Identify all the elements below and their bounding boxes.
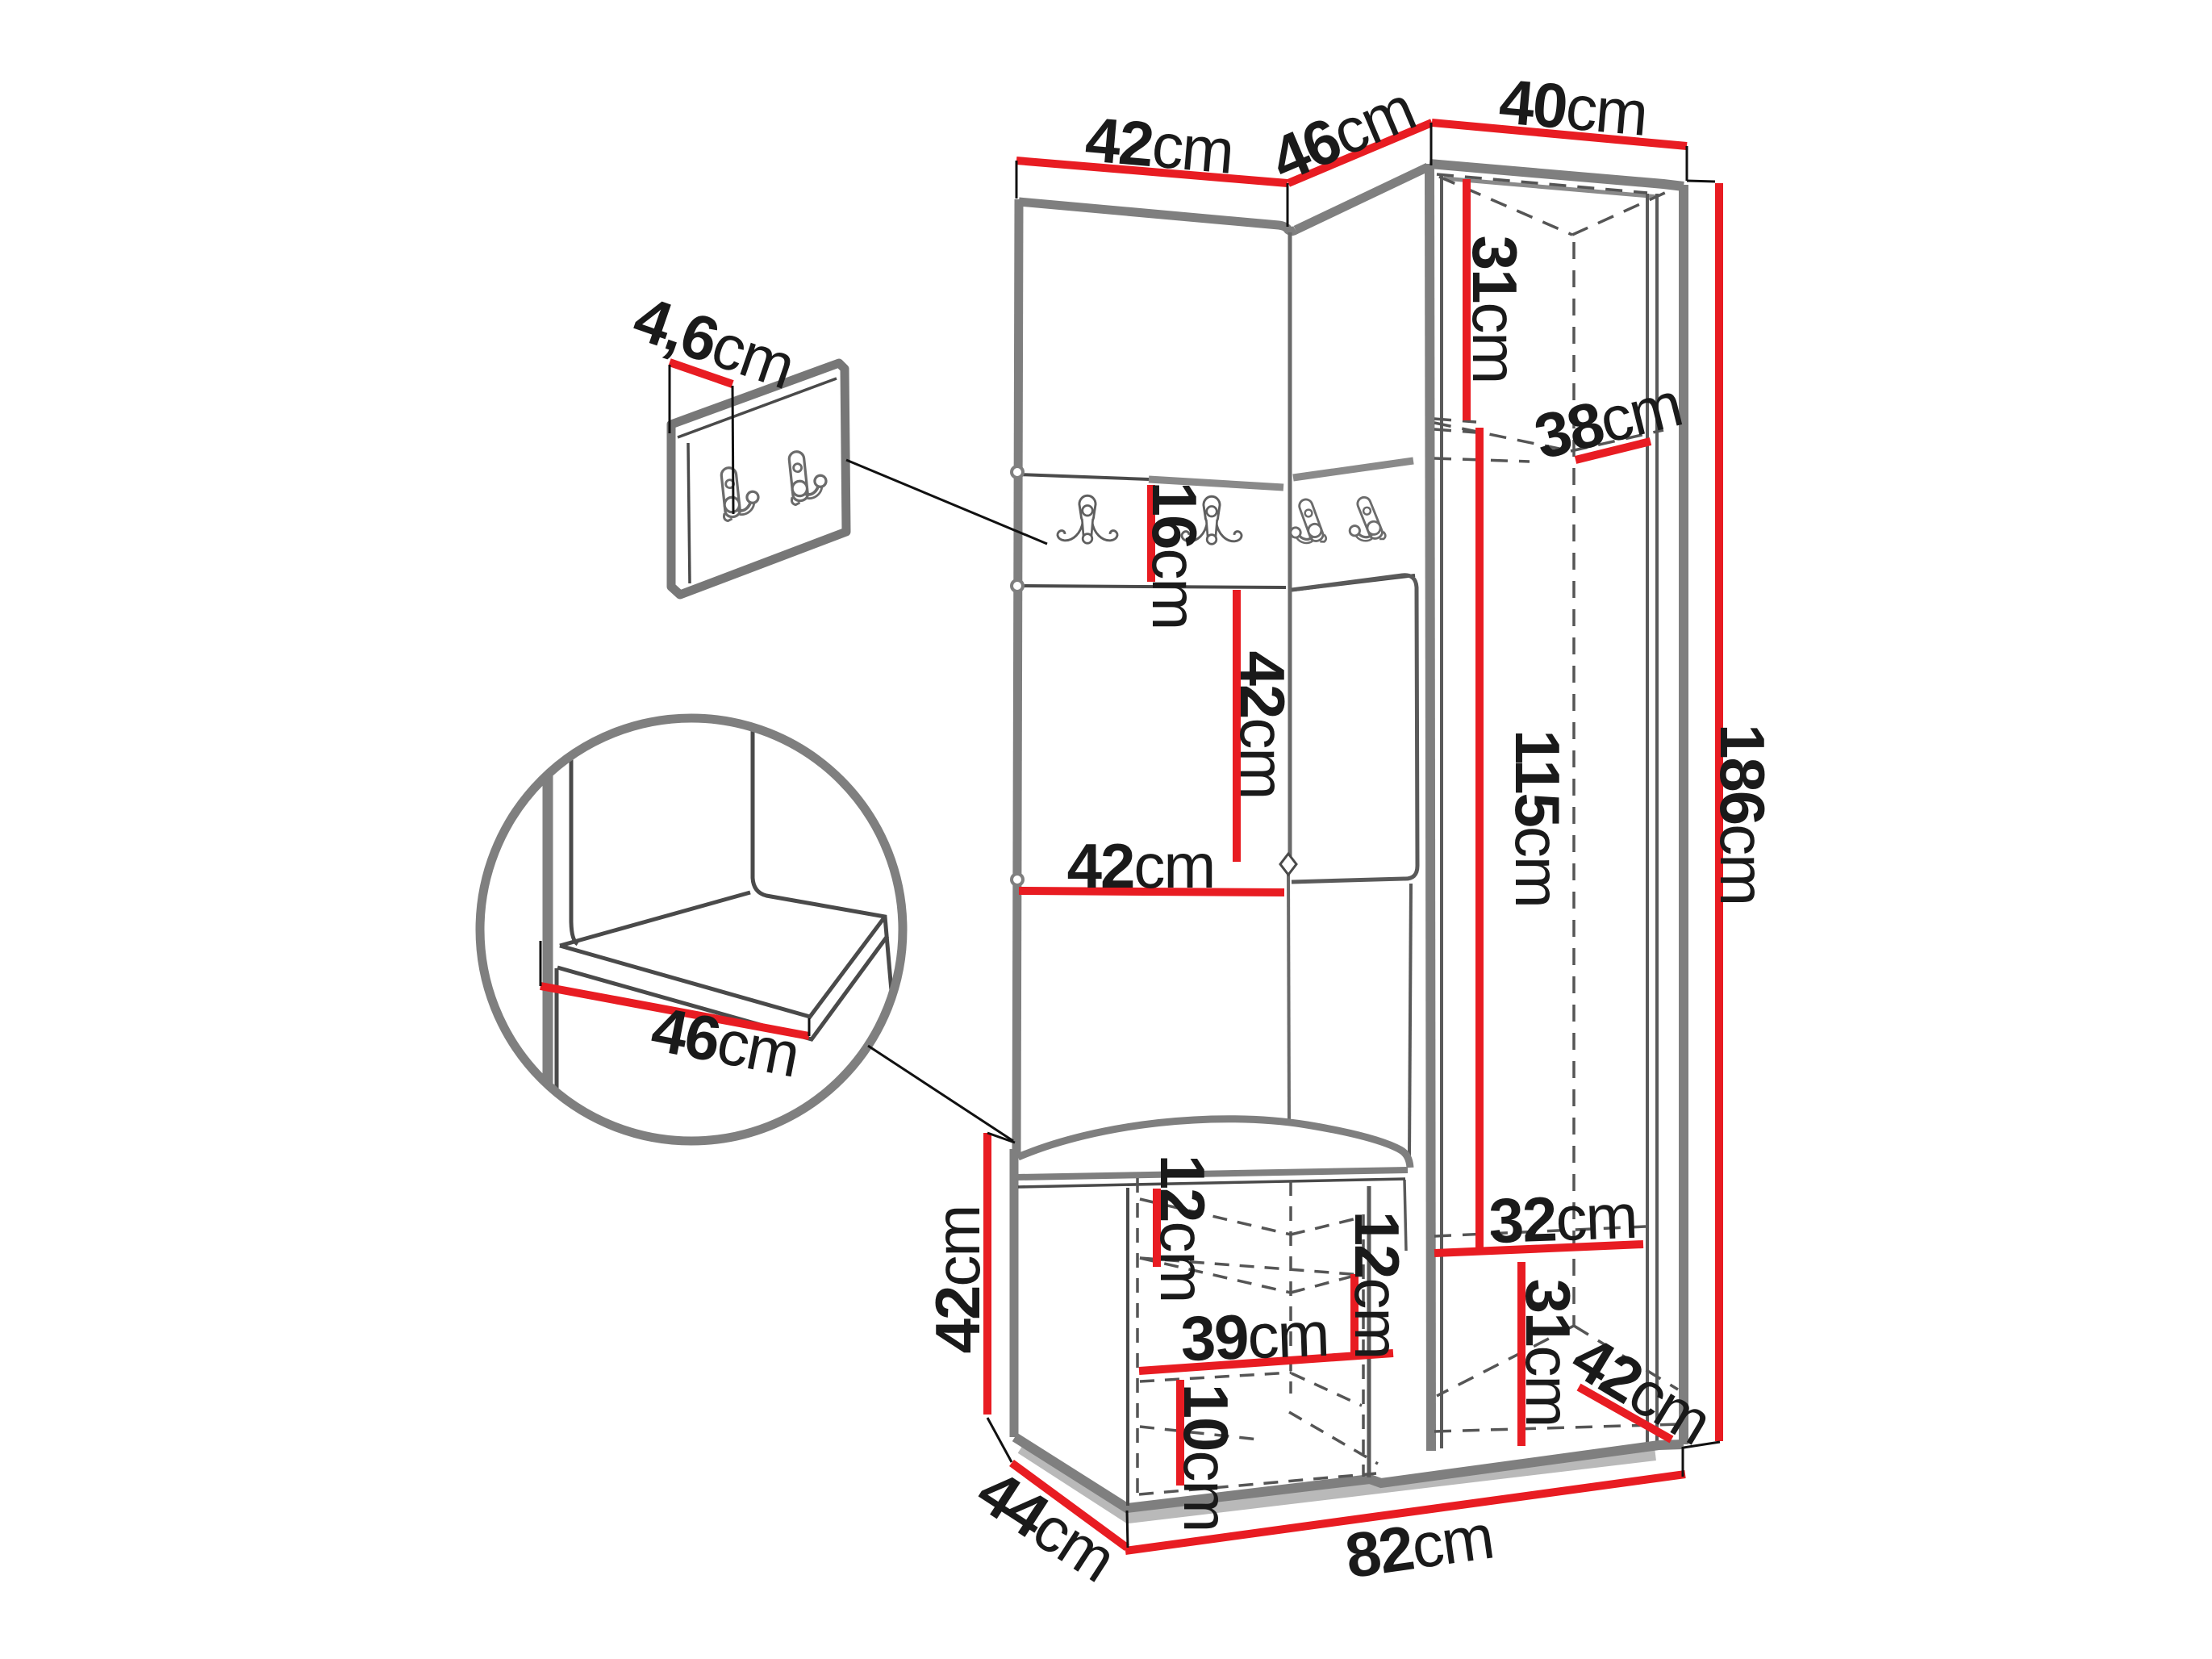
svg-text:12cm: 12cm — [1147, 1155, 1218, 1302]
svg-text:40cm: 40cm — [1496, 65, 1650, 149]
svg-text:31cm: 31cm — [1513, 1279, 1584, 1427]
svg-text:42cm: 42cm — [1067, 830, 1215, 901]
svg-text:32cm: 32cm — [1488, 1181, 1638, 1256]
svg-text:10cm: 10cm — [1171, 1384, 1242, 1532]
svg-text:39cm: 39cm — [1179, 1298, 1329, 1374]
svg-text:42cm: 42cm — [1227, 651, 1298, 799]
svg-text:115cm: 115cm — [1502, 729, 1573, 907]
svg-text:31cm: 31cm — [1459, 236, 1530, 383]
svg-text:186cm: 186cm — [1707, 724, 1778, 905]
svg-text:42cm: 42cm — [1083, 103, 1236, 187]
svg-text:12cm: 12cm — [1342, 1211, 1413, 1359]
svg-text:16cm: 16cm — [1139, 482, 1210, 629]
svg-text:42cm: 42cm — [922, 1206, 993, 1354]
